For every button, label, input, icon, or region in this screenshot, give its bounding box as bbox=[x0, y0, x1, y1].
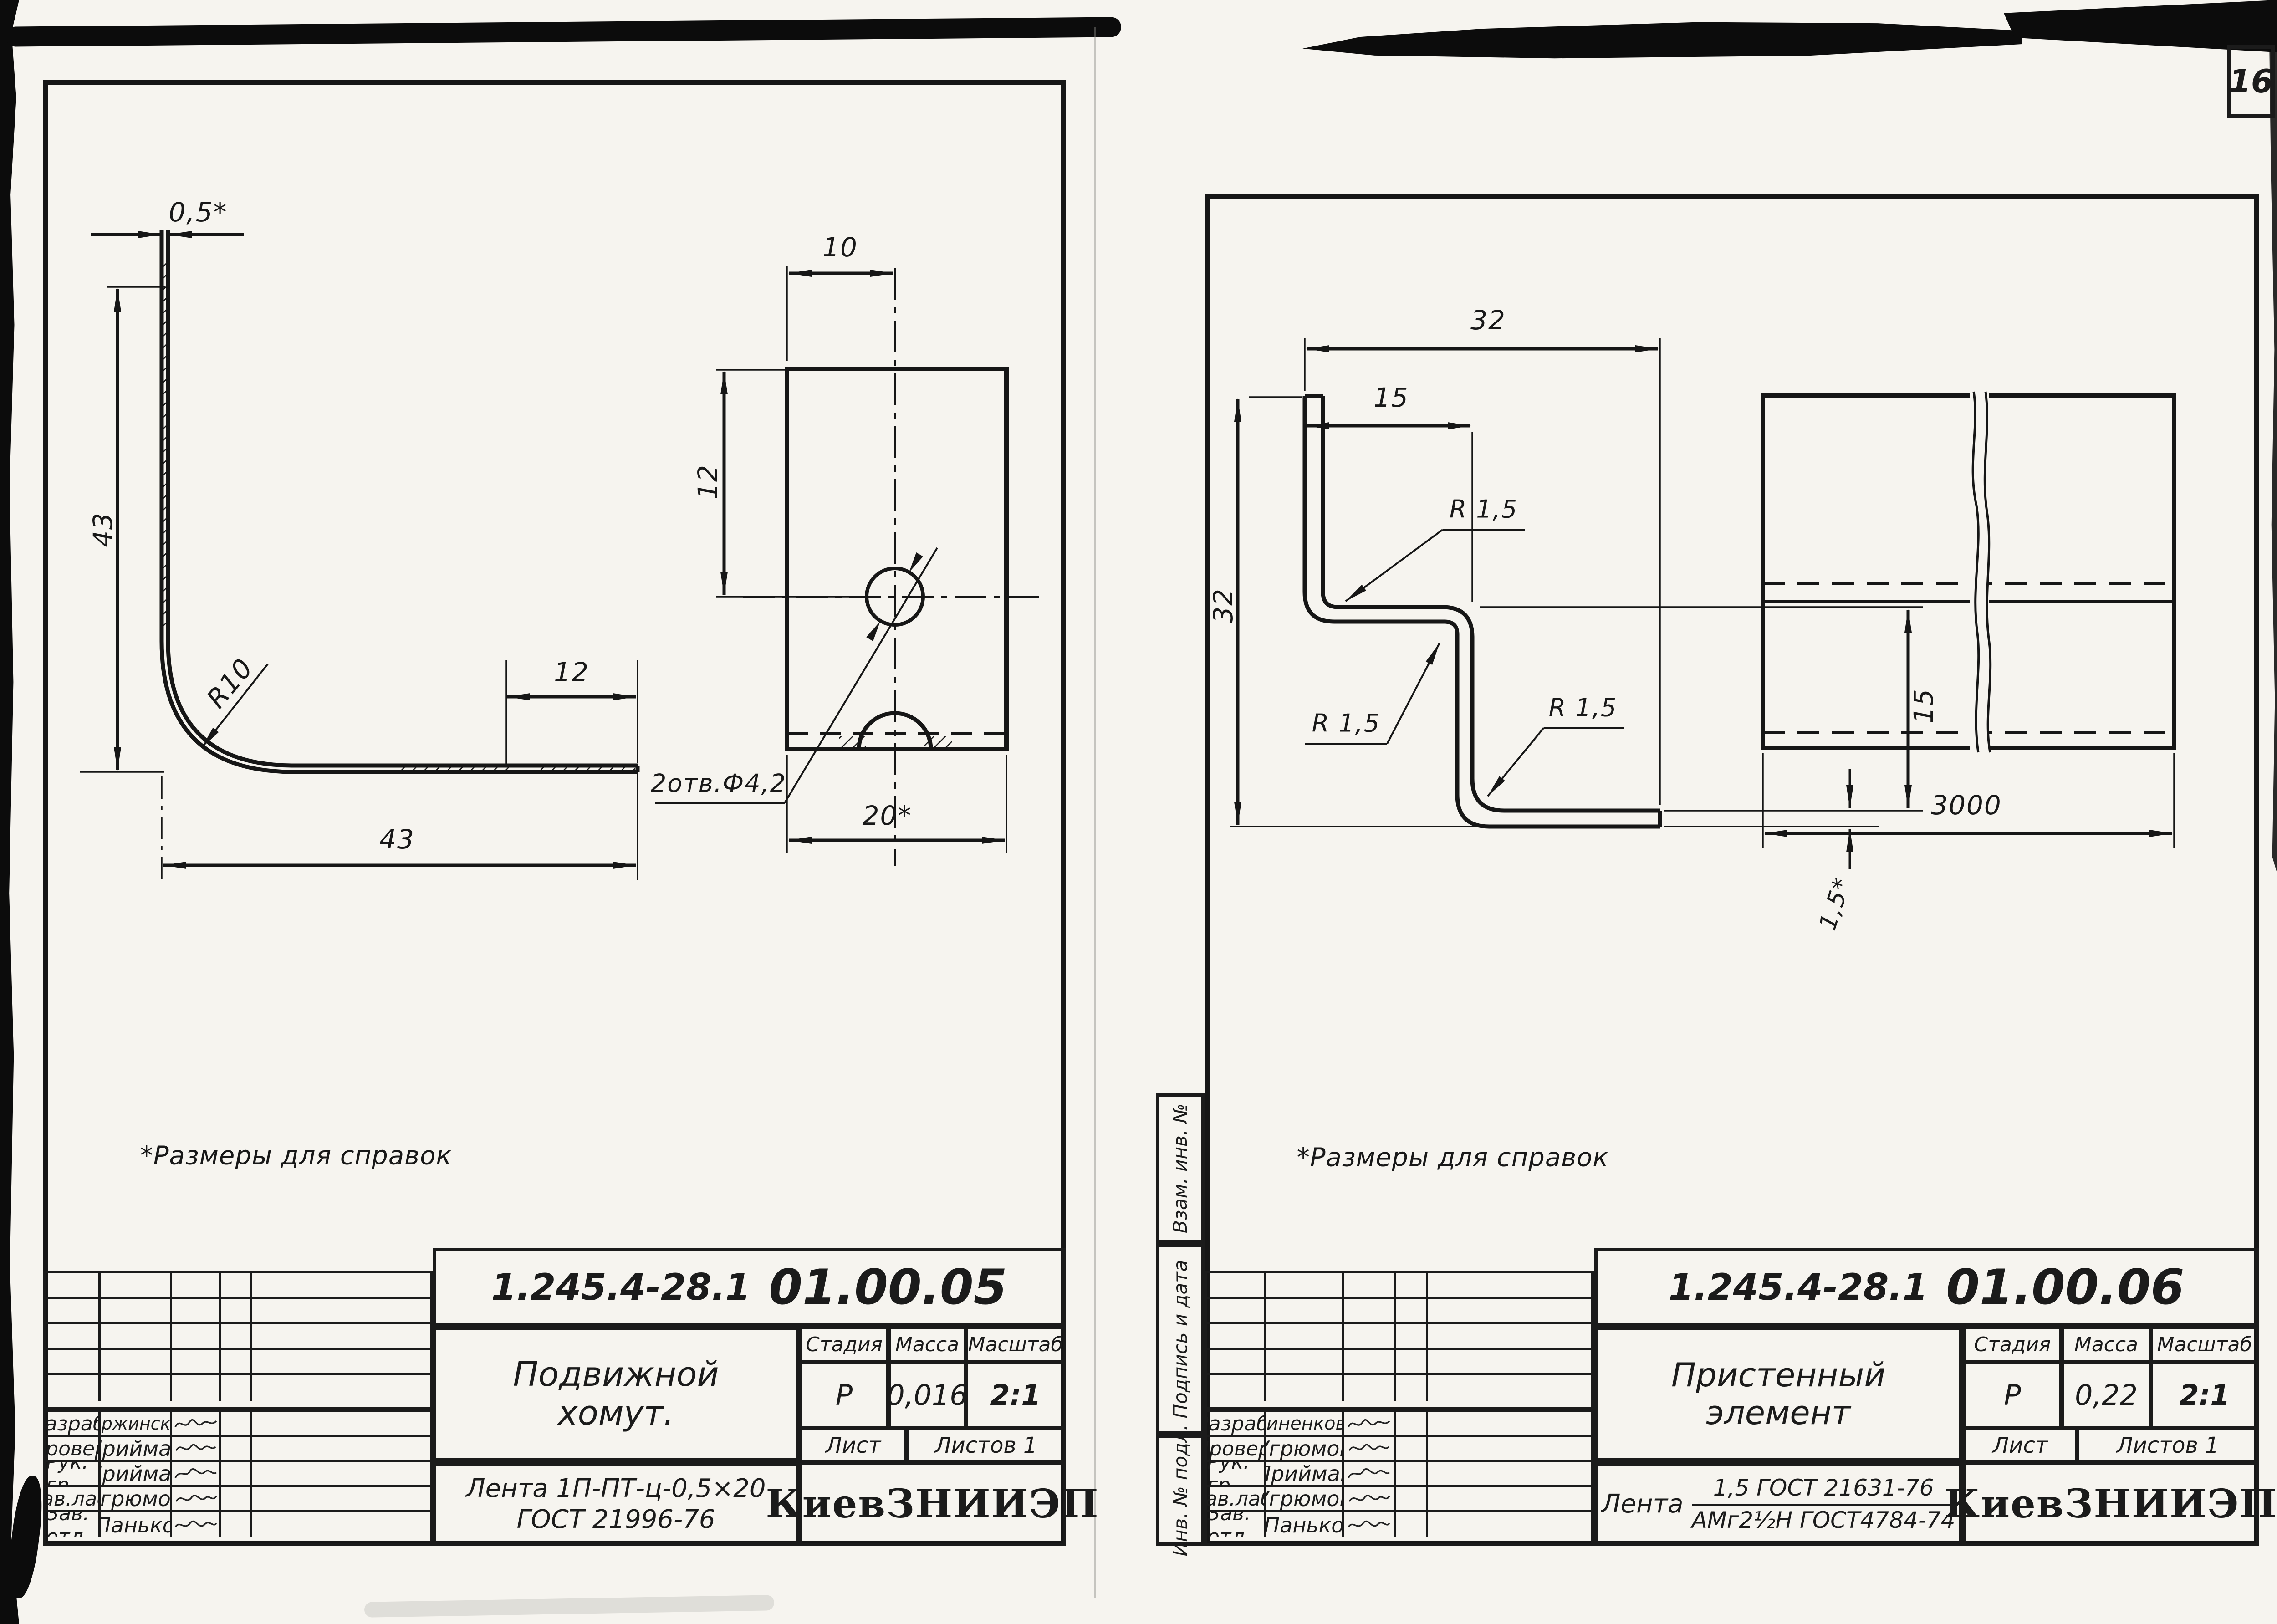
right-scale-value: 2:1 bbox=[2150, 1362, 2259, 1429]
margin-label: Взам. инв. № bbox=[1169, 1103, 1191, 1233]
dim-height-43: 43 bbox=[87, 512, 118, 547]
product-name-line2: хомут. bbox=[558, 1394, 674, 1433]
dim-r1: R 1,5 bbox=[1450, 495, 1518, 524]
sig-name: Вержинская bbox=[101, 1412, 172, 1437]
sig-name: Угрюмов bbox=[101, 1487, 172, 1512]
right-scale-label: Масштаб bbox=[2150, 1326, 2259, 1363]
right-stage-value: Р bbox=[1963, 1362, 2062, 1429]
scale-value: 2:1 bbox=[2179, 1379, 2230, 1412]
signature-scribble bbox=[172, 1512, 221, 1537]
left-scale-label: Масштаб bbox=[965, 1326, 1066, 1363]
sig-role: Разраб. bbox=[1207, 1412, 1266, 1437]
margin-box-vzam: Взам. инв. № bbox=[1156, 1093, 1205, 1243]
hole-callout: 2отв.Ф4,2 bbox=[651, 769, 786, 798]
stage-value: Р bbox=[2004, 1379, 2021, 1412]
left-sheets-label: Листов 1 bbox=[906, 1428, 1066, 1463]
scale-label: Масштаб bbox=[968, 1333, 1063, 1356]
material-numerator: 1,5 ГОСТ 21631-76 bbox=[1692, 1474, 1955, 1507]
product-name-line2: элемент bbox=[1706, 1394, 1850, 1432]
product-name-line1: Пристенный bbox=[1671, 1356, 1885, 1394]
right-doc-number-box: 1.245.4-28.1 01.00.06 bbox=[1594, 1248, 2259, 1326]
sig-name: Приймак bbox=[101, 1437, 172, 1462]
right-sheets-label: Листов 1 bbox=[2077, 1428, 2259, 1463]
margin-box-podpis: Подпись и дата bbox=[1156, 1243, 1205, 1435]
reference-note: *Размеры для справок bbox=[140, 1141, 452, 1171]
mass-label: Масса bbox=[2074, 1333, 2138, 1356]
dim-length-3000: 3000 bbox=[1931, 790, 2002, 821]
organization-name: КиевЗНИИЭП bbox=[766, 1481, 1099, 1527]
scale-label: Масштаб bbox=[2157, 1333, 2252, 1356]
right-organization: КиевЗНИИЭП bbox=[1963, 1462, 2259, 1546]
material-prefix: Лента bbox=[1601, 1489, 1683, 1519]
left-stamp-empty-grid bbox=[43, 1271, 433, 1410]
signature-scribble bbox=[1344, 1487, 1396, 1512]
signature-scribble bbox=[172, 1437, 221, 1462]
product-name-line1: Подвижной bbox=[513, 1355, 719, 1394]
right-mass-value: 0,22 bbox=[2061, 1362, 2151, 1429]
right-sheet-label: Лист bbox=[1963, 1428, 2078, 1463]
dim-width-20: 20* bbox=[863, 800, 912, 831]
right-material: Лента 1,5 ГОСТ 21631-76 АМг2½Н ГОСТ4784-… bbox=[1594, 1462, 1963, 1546]
scanned-drawing-page: 16 bbox=[0, 0, 2277, 1624]
margin-label: Инв. № подл. bbox=[1169, 1425, 1191, 1557]
sig-role: Провер. bbox=[1207, 1437, 1266, 1462]
right-signature-table: Разраб. Миненкова Провер. Угрюмов Рук. г… bbox=[1205, 1410, 1594, 1546]
material-denominator: АМг2½Н ГОСТ4784-74 bbox=[1692, 1506, 1955, 1535]
organization-name: КиевЗНИИЭП bbox=[1944, 1481, 2277, 1527]
sig-role: Зав. отд bbox=[1207, 1512, 1266, 1537]
left-material: Лента 1П-ПТ-ц-0,5×20 ГОСТ 21996-76 bbox=[433, 1462, 799, 1546]
mass-value: 0,22 bbox=[2075, 1379, 2138, 1412]
sig-role: Зав.лаб. bbox=[46, 1487, 101, 1512]
sig-role: Разраб. bbox=[46, 1412, 101, 1437]
sig-role: Зав.лаб. bbox=[1207, 1487, 1266, 1512]
signature-scribble bbox=[1344, 1462, 1396, 1487]
mass-label: Масса bbox=[895, 1333, 959, 1356]
doc-code: 01.00.06 bbox=[1946, 1259, 2184, 1315]
material-line2: ГОСТ 21996-76 bbox=[517, 1504, 715, 1535]
left-organization: КиевЗНИИЭП bbox=[799, 1462, 1066, 1546]
signature-scribble bbox=[172, 1412, 221, 1437]
sig-name: Угрюмов bbox=[1266, 1487, 1344, 1512]
dim-height-32: 32 bbox=[1208, 588, 1239, 623]
doc-number: 1.245.4-28.1 bbox=[1669, 1266, 1928, 1308]
left-sheet-label: Лист bbox=[799, 1428, 907, 1463]
dim-width-total-32: 32 bbox=[1470, 305, 1506, 336]
left-stage-value: Р bbox=[799, 1362, 889, 1429]
signature-scribble bbox=[1344, 1512, 1396, 1537]
dim-thickness: 0,5* bbox=[168, 197, 227, 228]
stage-label: Стадия bbox=[806, 1333, 883, 1356]
sheet-label: Лист bbox=[1992, 1433, 2048, 1458]
sig-role: Провер. bbox=[46, 1437, 101, 1462]
sig-name: Угрюмов bbox=[1266, 1437, 1344, 1462]
left-doc-number-box: 1.245.4-28.1 01.00.05 bbox=[433, 1248, 1066, 1326]
sig-role: Рук. гр. bbox=[46, 1462, 101, 1487]
sheets-label: Листов 1 bbox=[934, 1433, 1037, 1458]
sig-role: Рук. гр. bbox=[1207, 1462, 1266, 1487]
dim-leg-15: 15 bbox=[1908, 688, 1939, 724]
sig-name: Миненкова bbox=[1266, 1412, 1344, 1437]
sig-name: Панько bbox=[1266, 1512, 1344, 1537]
scale-value: 2:1 bbox=[990, 1379, 1041, 1412]
doc-code: 01.00.05 bbox=[769, 1259, 1007, 1315]
margin-box-inv: Инв. № подл. bbox=[1156, 1435, 1205, 1546]
reference-note: *Размеры для справок bbox=[1297, 1143, 1608, 1173]
signature-scribble bbox=[172, 1462, 221, 1487]
signature-scribble bbox=[1344, 1437, 1396, 1462]
left-product-name: Подвижной хомут. bbox=[433, 1326, 799, 1462]
dim-hole-x-10: 10 bbox=[822, 232, 858, 263]
dim-r2: R 1,5 bbox=[1312, 709, 1381, 738]
stage-value: Р bbox=[836, 1379, 853, 1412]
doc-number: 1.245.4-28.1 bbox=[491, 1266, 751, 1308]
right-stage-label: Стадия bbox=[1963, 1326, 2062, 1363]
margin-label: Подпись и дата bbox=[1169, 1260, 1191, 1418]
right-mass-label: Масса bbox=[2061, 1326, 2151, 1363]
dim-r3: R 1,5 bbox=[1549, 694, 1618, 722]
sheet-label: Лист bbox=[826, 1433, 881, 1458]
right-product-name: Пристенный элемент bbox=[1594, 1326, 1963, 1462]
dim-tab-12: 12 bbox=[554, 657, 589, 688]
sig-role: Зав. отд bbox=[46, 1512, 101, 1537]
left-mass-value: 0,016 bbox=[888, 1362, 966, 1429]
left-stage-label: Стадия bbox=[799, 1326, 889, 1363]
material-fraction: 1,5 ГОСТ 21631-76 АМг2½Н ГОСТ4784-74 bbox=[1692, 1474, 1955, 1535]
left-scale-value: 2:1 bbox=[965, 1362, 1066, 1429]
sig-name: Приймак bbox=[101, 1462, 172, 1487]
material-line1: Лента 1П-ПТ-ц-0,5×20 bbox=[466, 1473, 766, 1504]
right-stamp-empty-grid bbox=[1205, 1271, 1594, 1410]
dim-width-top-15: 15 bbox=[1373, 382, 1409, 413]
left-signature-table: Разраб. Вержинская Провер. Приймак Рук. … bbox=[43, 1410, 433, 1546]
mass-value: 0,016 bbox=[887, 1379, 968, 1412]
left-mass-label: Масса bbox=[888, 1326, 966, 1363]
sig-name: Панько bbox=[101, 1512, 172, 1537]
stage-label: Стадия bbox=[1974, 1333, 2051, 1356]
sheets-label: Листов 1 bbox=[2116, 1433, 2219, 1458]
signature-scribble bbox=[1344, 1412, 1396, 1437]
dim-hole-y-12: 12 bbox=[692, 464, 723, 500]
signature-scribble bbox=[172, 1487, 221, 1512]
sig-name: Приймак bbox=[1266, 1462, 1344, 1487]
dim-length-43: 43 bbox=[379, 824, 415, 855]
